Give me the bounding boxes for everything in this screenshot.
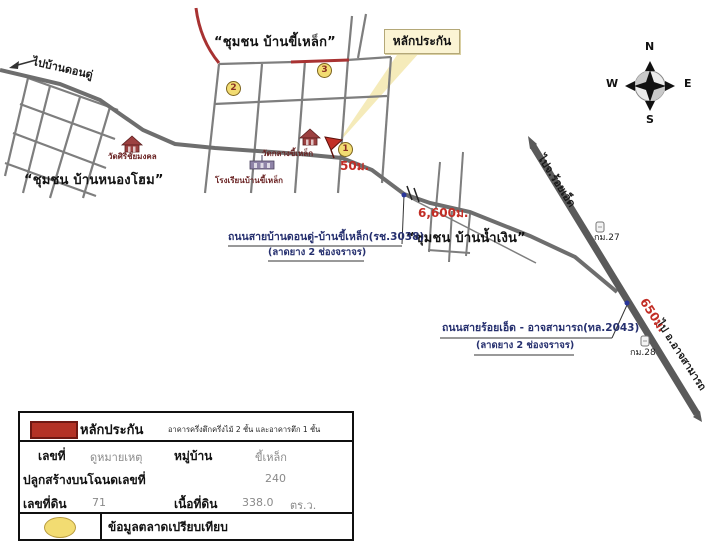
deed-value: 240: [265, 472, 286, 485]
km27-label: กม.27: [594, 233, 620, 243]
point-1-marker: 1: [338, 142, 353, 157]
house-no-label: เลขที่: [38, 447, 66, 466]
legend-building-desc: อาคารครึ่งตึกครึ่งไม้ 2 ชั้น และอาคารตึก…: [168, 424, 320, 436]
house-no-value: ดูหมายเหตุ: [90, 448, 142, 466]
legend-divider: [20, 440, 352, 442]
point-3-marker: 3: [317, 63, 332, 78]
measure-point-dot-2: [625, 301, 630, 306]
parcel-value: 71: [92, 496, 106, 509]
road2-lanes-label: (ลาดยาง 2 ช่องจราจร): [476, 341, 574, 352]
compass-s-label: S: [646, 114, 654, 127]
west-arrowhead: [9, 61, 19, 69]
distance-50m: 50ม.: [340, 160, 369, 174]
compass-e-label: E: [684, 78, 692, 91]
deed-label: ปลูกสร้างบนโฉนดเลขที่: [23, 471, 146, 490]
village-value: ขี้เหล็ก: [255, 448, 287, 466]
appraisal-location-map: ไปบ้านดอนดู่ ไปจ.ร้อยเอ็ด ไป อ.อาจสามารถ…: [0, 0, 712, 559]
market-data-label: ข้อมูลตลาดเปรียบเทียบ: [108, 518, 228, 537]
distance-6600m: 6,600ม.: [418, 207, 468, 221]
measure-point-dot-1: [402, 193, 407, 198]
legend-collateral-label: หลักประกัน: [80, 419, 143, 440]
km28-post-icon: [641, 336, 649, 346]
school-bankhilek-label: โรงเรียนบ้านขี้เหล็ก: [215, 176, 283, 185]
red-road-segment: [291, 60, 349, 62]
community-nonghom-label: “ชุมชน บ้านหนองโฮม”: [24, 174, 164, 189]
km27-post-icon: [596, 222, 604, 232]
community-khilek-label: “ชุมชน บ้านขี้เหล็ก”: [214, 36, 336, 51]
collateral-callout-box: หลักประกัน: [384, 29, 460, 54]
market-row-divider: [100, 514, 102, 539]
temple-klangkhilek-icon: [300, 129, 320, 145]
temple-sirichaimongkol-icon: [122, 136, 142, 152]
road1-name-label: ถนนสายบ้านดอนดู่-บ้านขี้เหล็ก(รช.3038): [228, 231, 424, 243]
compass-rose-icon: [625, 61, 675, 111]
market-data-symbol: [44, 517, 76, 538]
temple-sirichaimongkol-label: วัดศิริชัยมงคล: [108, 152, 157, 161]
area-value: 338.0: [242, 496, 274, 509]
temple-klangkhilek-label: วัดกลางขี้เหล็ก: [262, 149, 313, 158]
km28-label: กม.28: [630, 348, 656, 358]
compass-n-label: N: [645, 41, 654, 54]
road1-lanes-label: (ลาดยาง 2 ช่องจราจร): [268, 248, 366, 259]
village-label: หมู่บ้าน: [174, 447, 212, 466]
road2-name-label: ถนนสายร้อยเอ็ด - อาจสามารถ(ทล.2043): [442, 322, 639, 334]
collateral-color-swatch: [30, 421, 78, 439]
compass-w-label: W: [606, 78, 618, 91]
market-data-row: ข้อมูลตลาดเปรียบเทียบ: [18, 512, 354, 541]
point-2-marker: 2: [226, 81, 241, 96]
legend-table: หลักประกัน อาคารครึ่งตึกครึ่งไม้ 2 ชั้น …: [18, 411, 354, 516]
